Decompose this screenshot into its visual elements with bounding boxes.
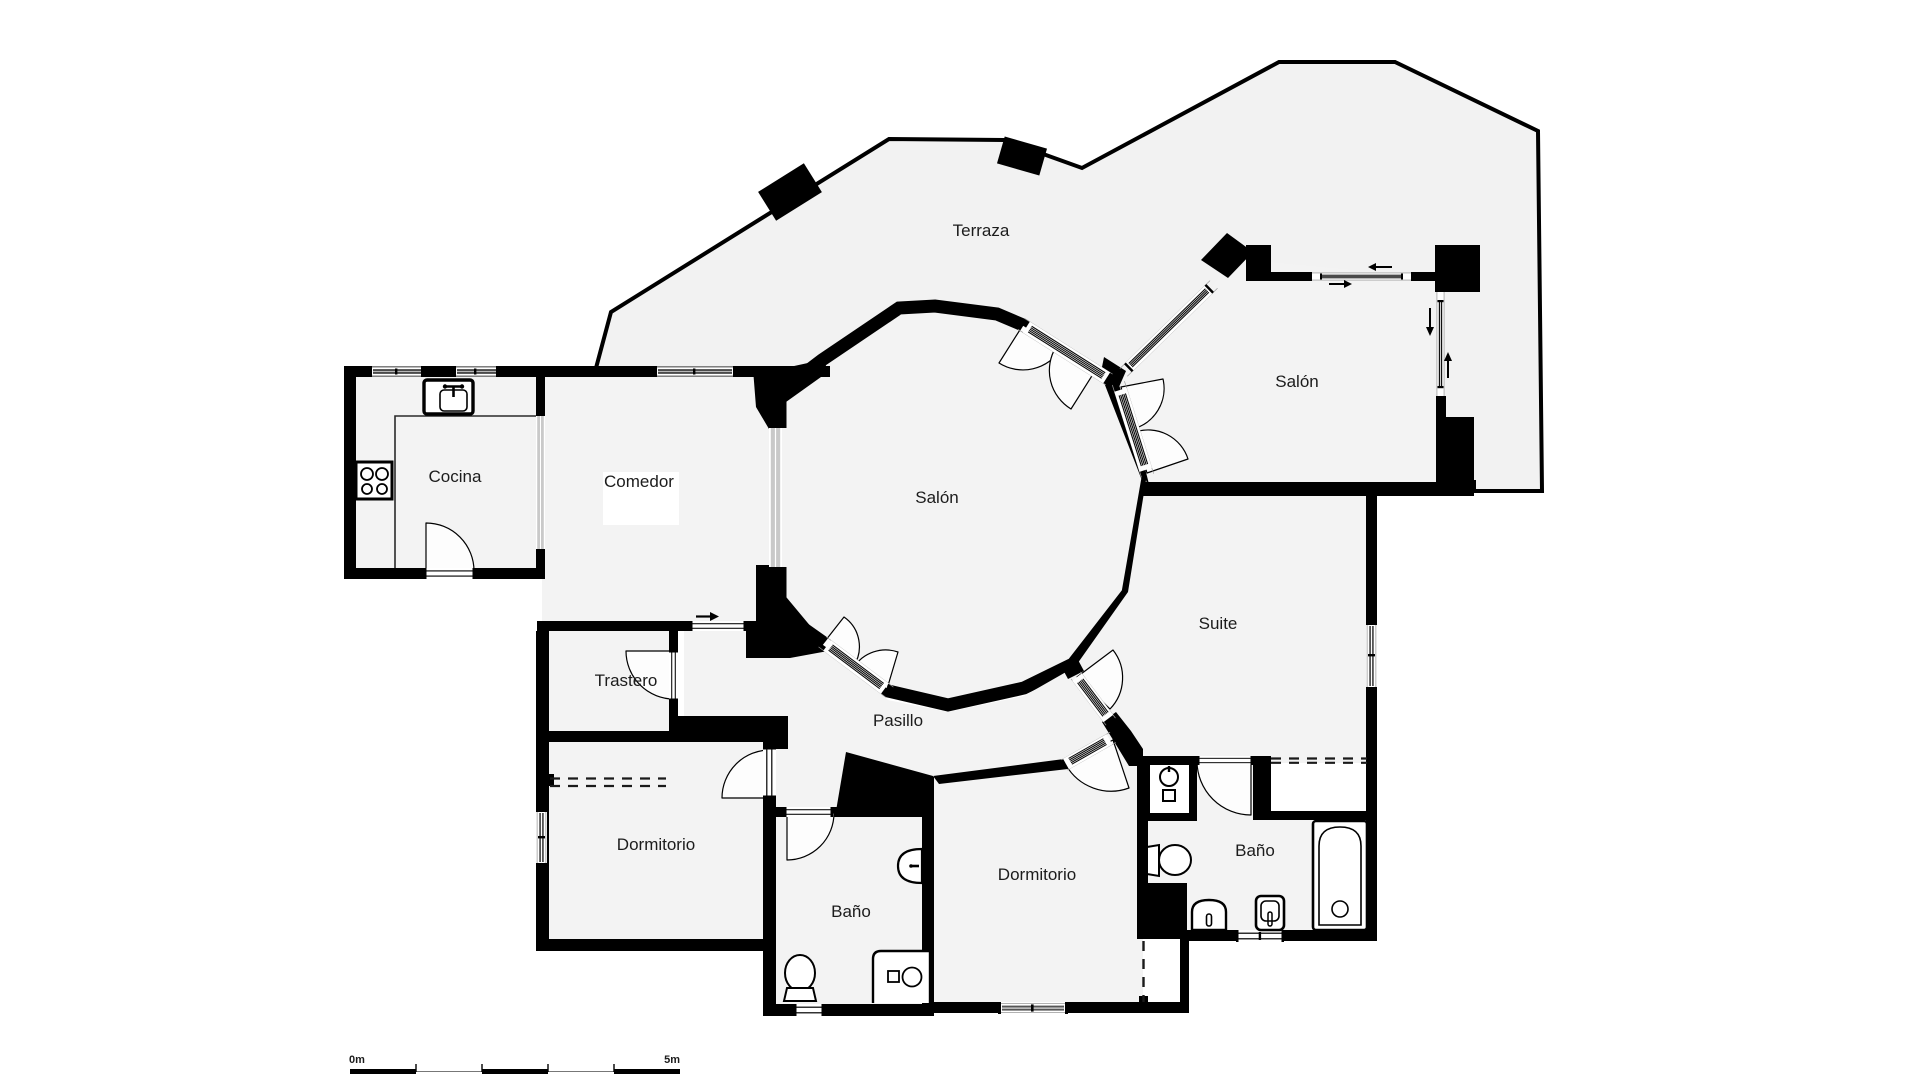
svg-text:Suite: Suite (1199, 614, 1238, 633)
svg-text:Pasillo: Pasillo (873, 711, 923, 730)
svg-text:Trastero: Trastero (595, 671, 658, 690)
svg-text:0m: 0m (349, 1054, 365, 1066)
svg-text:Cocina: Cocina (429, 467, 482, 486)
svg-text:Dormitorio: Dormitorio (998, 865, 1076, 884)
svg-text:Comedor: Comedor (604, 472, 674, 491)
svg-text:Salón: Salón (915, 488, 958, 507)
svg-text:Salón: Salón (1275, 372, 1318, 391)
svg-text:Baño: Baño (831, 902, 871, 921)
svg-text:Baño: Baño (1235, 841, 1275, 860)
svg-text:5m: 5m (664, 1054, 680, 1066)
svg-text:Dormitorio: Dormitorio (617, 835, 695, 854)
svg-text:Terraza: Terraza (953, 221, 1010, 240)
